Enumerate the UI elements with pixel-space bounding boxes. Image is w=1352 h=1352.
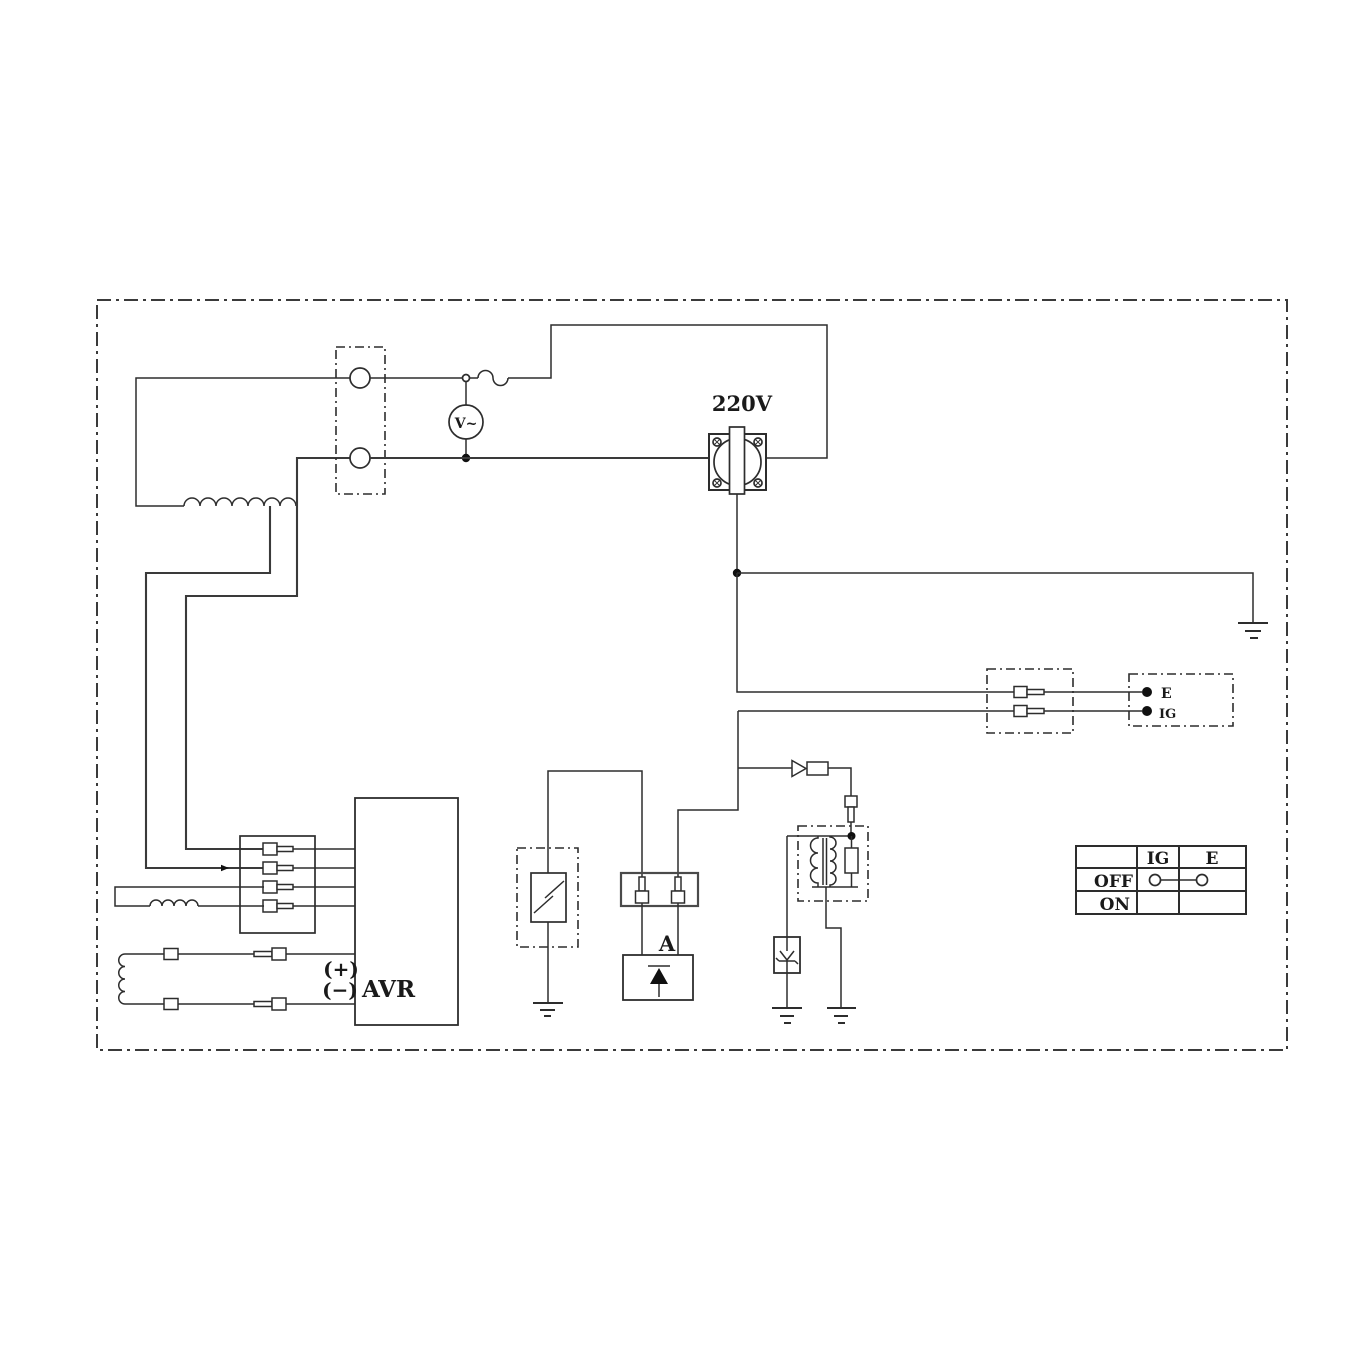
ignition-feed bbox=[738, 761, 857, 837]
ignition-coil bbox=[787, 826, 868, 1023]
output-terminal-connector bbox=[336, 347, 385, 494]
spark-plug-cap-icon bbox=[845, 796, 857, 807]
fuse-icon bbox=[478, 371, 508, 386]
resistor-icon bbox=[807, 762, 828, 775]
socket-ground-blade bbox=[730, 427, 745, 494]
power-socket-220v: 220V bbox=[709, 391, 773, 494]
primary-winding-icon bbox=[811, 836, 818, 887]
wire-arrow-mark bbox=[221, 865, 229, 871]
secondary-winding-icon bbox=[830, 836, 836, 887]
socket-voltage-label: 220V bbox=[712, 391, 773, 416]
avr-unit: AVR (+) (−) bbox=[322, 798, 458, 1025]
coil-resistor-icon bbox=[845, 848, 858, 873]
brush-connector-icon bbox=[164, 949, 178, 960]
terminal-label-ig: IG bbox=[1159, 707, 1176, 722]
kill-switch-connector-box bbox=[987, 669, 1073, 733]
wiring-diagram-page: V~ 220V bbox=[0, 0, 1352, 1352]
table-header-e: E bbox=[1206, 849, 1219, 869]
scr-unit: A bbox=[623, 931, 693, 1000]
brush-connector-icon bbox=[164, 999, 178, 1010]
switch-position-table: IG E OFF ON bbox=[1076, 846, 1246, 915]
voltmeter: V~ bbox=[449, 382, 483, 462]
voltmeter-label: V~ bbox=[454, 416, 478, 432]
terminal-label-e: E bbox=[1161, 686, 1172, 702]
ground-symbol-main bbox=[1238, 623, 1268, 638]
diagram-border bbox=[97, 300, 1287, 1050]
ground-symbol-coil bbox=[827, 1008, 856, 1023]
table-header-ig: IG bbox=[1147, 849, 1169, 869]
core-icon bbox=[823, 838, 827, 885]
ground-bus bbox=[733, 494, 1268, 638]
avr-label: AVR bbox=[361, 976, 416, 1003]
scr-unit-label: A bbox=[658, 931, 676, 956]
bullet-connector-icon bbox=[1014, 687, 1027, 698]
engine-kill-wiring: E IG bbox=[678, 573, 1233, 877]
bullet-connector-icon bbox=[272, 948, 286, 960]
engine-terminal-box: E IG bbox=[1129, 674, 1233, 726]
wiring-diagram-svg: V~ 220V bbox=[0, 0, 1352, 1352]
sub-winding bbox=[115, 887, 264, 906]
ground-symbol-capacitor bbox=[533, 1003, 563, 1016]
bullet-connector-icon bbox=[1014, 706, 1027, 717]
table-row-on: ON bbox=[1100, 895, 1130, 915]
terminal-dot-ig bbox=[1142, 706, 1152, 716]
terminal-dot-e bbox=[1142, 687, 1152, 697]
table-row-off: OFF bbox=[1094, 872, 1133, 892]
diode-icon bbox=[792, 761, 806, 777]
field-winding bbox=[119, 948, 355, 1010]
bullet-connector-icon bbox=[263, 843, 293, 912]
stator-main-winding bbox=[136, 378, 350, 868]
avr-connector-4pin bbox=[221, 836, 355, 933]
ground-symbol-zener bbox=[772, 1008, 802, 1023]
bullet-connector-icon bbox=[636, 891, 649, 903]
test-point-terminal bbox=[463, 375, 470, 382]
bullet-connector-icon bbox=[272, 998, 286, 1010]
field-minus-label: (−) bbox=[322, 978, 358, 1002]
bullet-connector-icon bbox=[672, 891, 685, 903]
